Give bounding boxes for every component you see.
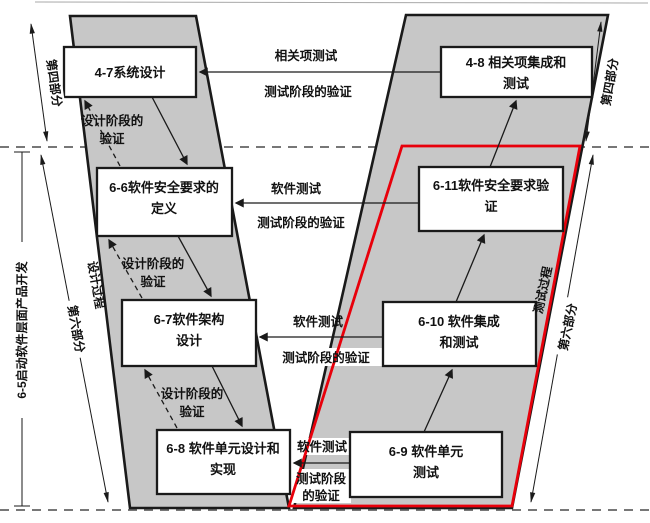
label-part6-left: 第六部分 (63, 299, 89, 359)
svg-text:第四部分: 第四部分 (44, 58, 66, 108)
label-part4-left: 第四部分 (42, 53, 66, 113)
box-4-8-label2: 测试 (503, 76, 529, 91)
box-6-10-label2: 和测试 (439, 335, 478, 350)
box-6-10-sw-integration-test (383, 302, 536, 366)
label-sw-test-1: 软件测试 (271, 181, 322, 196)
label-test-verify-top: 测试阶段的验证 (264, 84, 352, 99)
dim-line-part4-left (31, 24, 47, 141)
box-6-8-label2: 实现 (210, 462, 236, 477)
box-4-8-label: 4-8 相关项集成和 (466, 55, 566, 70)
box-6-7-label: 6-7软件架构 (154, 312, 225, 327)
label-design-verify-2a: 设计阶段的 (122, 256, 185, 271)
label-design-verify-1b: 验证 (99, 131, 125, 146)
label-test-verify-2: 测试阶段的验证 (282, 350, 370, 365)
box-6-7-label2: 设计 (176, 333, 202, 348)
box-6-9-label: 6-9 软件单元 (389, 444, 463, 459)
label-sw-test-2: 软件测试 (293, 314, 344, 329)
box-6-10-label: 6-10 软件集成 (418, 314, 500, 329)
box-6-11-label: 6-11软件安全要求验 (433, 178, 550, 193)
label-part4-right: 第四部分 (597, 52, 623, 112)
label-test-verify-3a: 测试阶段 (296, 471, 347, 486)
svg-text:6-5启动软件层面产品开发: 6-5启动软件层面产品开发 (14, 260, 29, 398)
page-edge-line (35, 2, 648, 3)
label-test-verify-3b: 的验证 (302, 488, 340, 503)
label-sw-level-dev: 6-5启动软件层面产品开发 (14, 248, 30, 412)
label-sw-test-3: 软件测试 (297, 439, 348, 454)
box-6-11-label2: 证 (484, 199, 497, 214)
label-part6-right: 第六部分 (554, 297, 582, 357)
diagram-canvas: 4-7系统设计 4-8 相关项集成和 测试 6-6软件安全要求的 定义 6-7软… (0, 0, 650, 523)
label-design-verify-3a: 设计阶段的 (161, 386, 224, 401)
box-6-6-label: 6-6软件安全要求的 (109, 180, 219, 195)
label-design-verify-3b: 验证 (179, 404, 205, 419)
label-design-verify-1a: 设计阶段的 (81, 113, 144, 128)
box-4-7-label: 4-7系统设计 (95, 65, 166, 80)
box-6-8-label: 6-8 软件单元设计和 (166, 441, 279, 456)
box-6-9-label2: 测试 (413, 465, 439, 480)
v-model-diagram: 4-7系统设计 4-8 相关项集成和 测试 6-6软件安全要求的 定义 6-7软… (0, 0, 650, 523)
label-test-verify-1: 测试阶段的验证 (257, 215, 345, 230)
label-design-verify-2b: 验证 (140, 274, 166, 289)
box-6-6-label2: 定义 (150, 201, 178, 216)
label-item-test: 相关项测试 (275, 48, 338, 63)
